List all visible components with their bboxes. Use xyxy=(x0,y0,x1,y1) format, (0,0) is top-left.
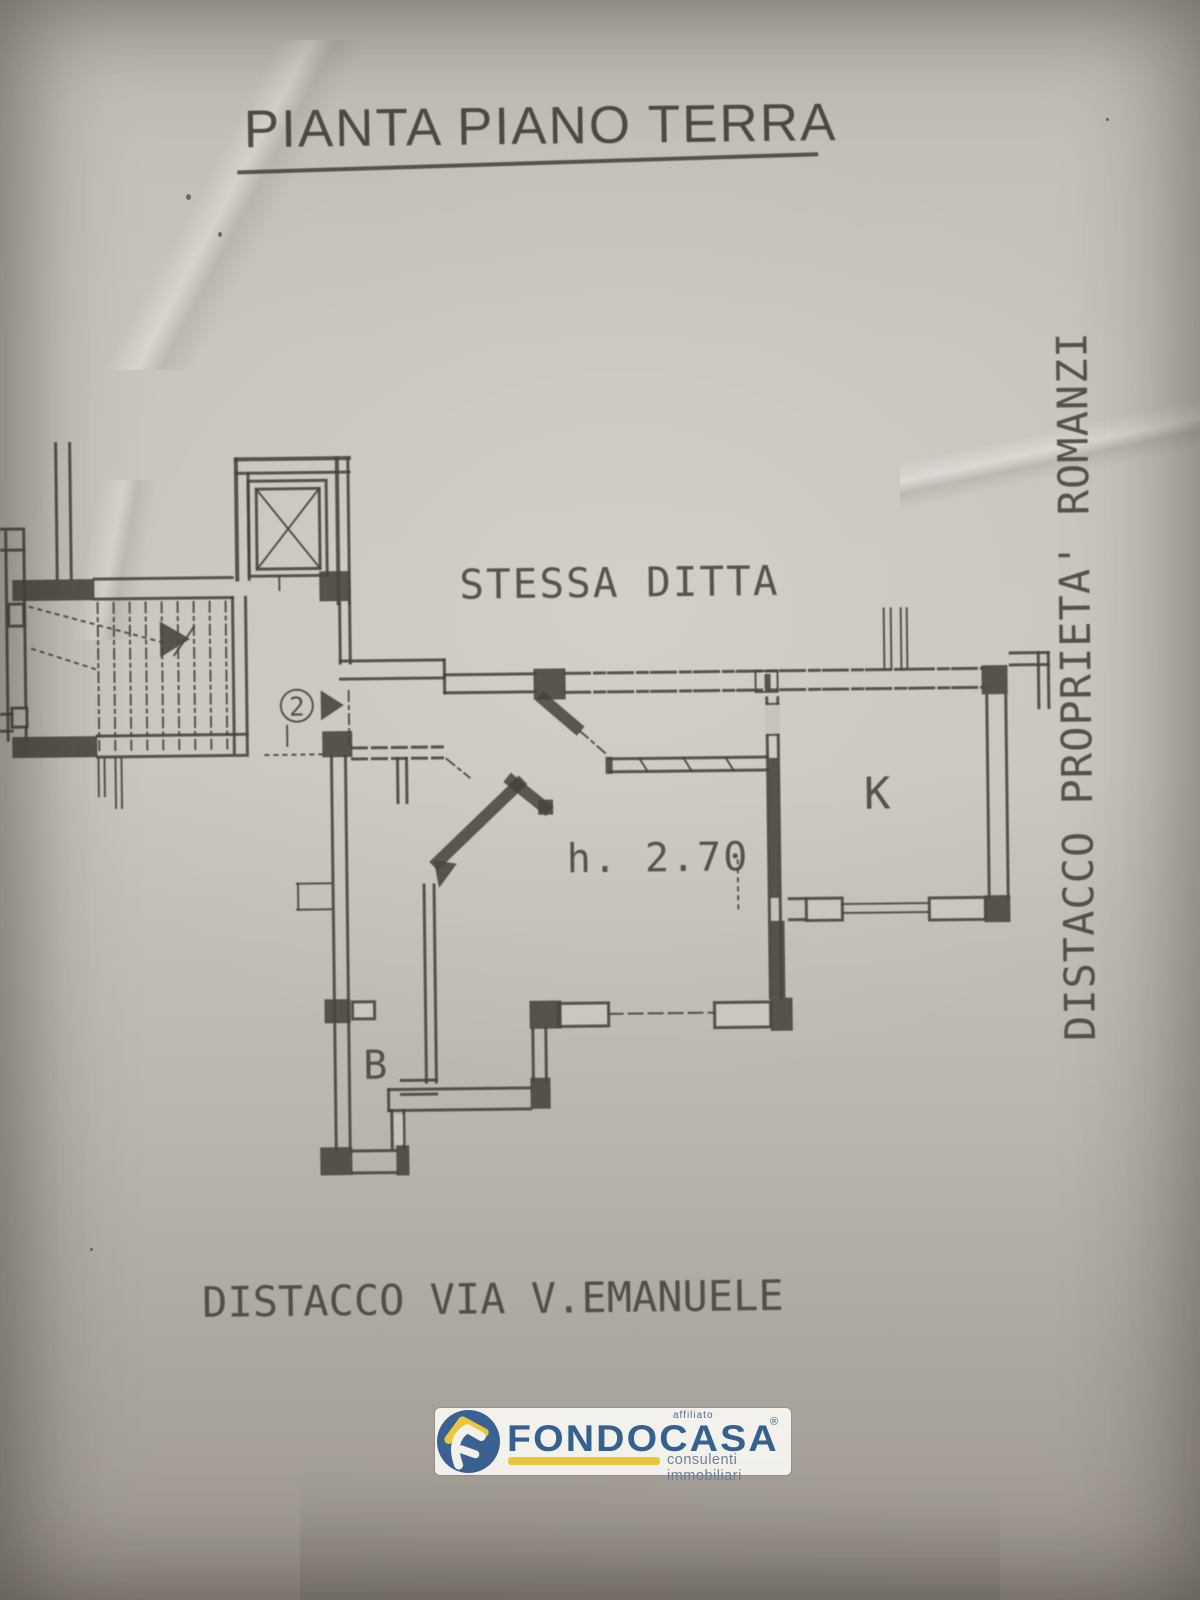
kitchen-label: K xyxy=(864,768,892,819)
adjacent-property-label: STESSA DITTA xyxy=(459,557,780,609)
affiliate-note: affiliato xyxy=(673,1410,714,1421)
stair-direction-arrow xyxy=(30,605,195,671)
kitchen-room: K xyxy=(787,695,1011,925)
bathroom-room: B xyxy=(295,754,551,1177)
apartment-top-walls xyxy=(340,595,1050,760)
main-room: h. 2.70 xyxy=(526,698,793,1034)
brand-tagline: consulenti immobiliari xyxy=(667,1452,791,1484)
photographed-floor-plan-page: PIANTA PIANO TERRA xyxy=(0,0,1200,1600)
registered-mark: ® xyxy=(770,1416,778,1428)
page-title: PIANTA PIANO TERRA xyxy=(243,93,837,159)
logo-accent-bar xyxy=(508,1457,660,1465)
floor-plan-drawing: PIANTA PIANO TERRA xyxy=(0,0,1200,1600)
boundary-bottom-label: DISTACCO VIA V.EMANUELE xyxy=(202,1271,784,1327)
ceiling-height-label: h. 2.70 xyxy=(566,834,749,882)
elevator-shaft xyxy=(236,458,351,604)
entry-arrow-icon xyxy=(321,690,344,720)
stylized-f-icon xyxy=(437,1410,500,1473)
agency-logo-icon xyxy=(437,1410,500,1473)
agency-logo: FONDOCASA affiliato ® consulenti immobil… xyxy=(435,1408,791,1475)
stairwell xyxy=(10,577,248,809)
boundary-right-label: DISTACCO PROPRIETA' ROMANZI xyxy=(1047,331,1105,1041)
unit-number: 2 xyxy=(289,693,305,723)
bath-label: B xyxy=(363,1043,388,1089)
